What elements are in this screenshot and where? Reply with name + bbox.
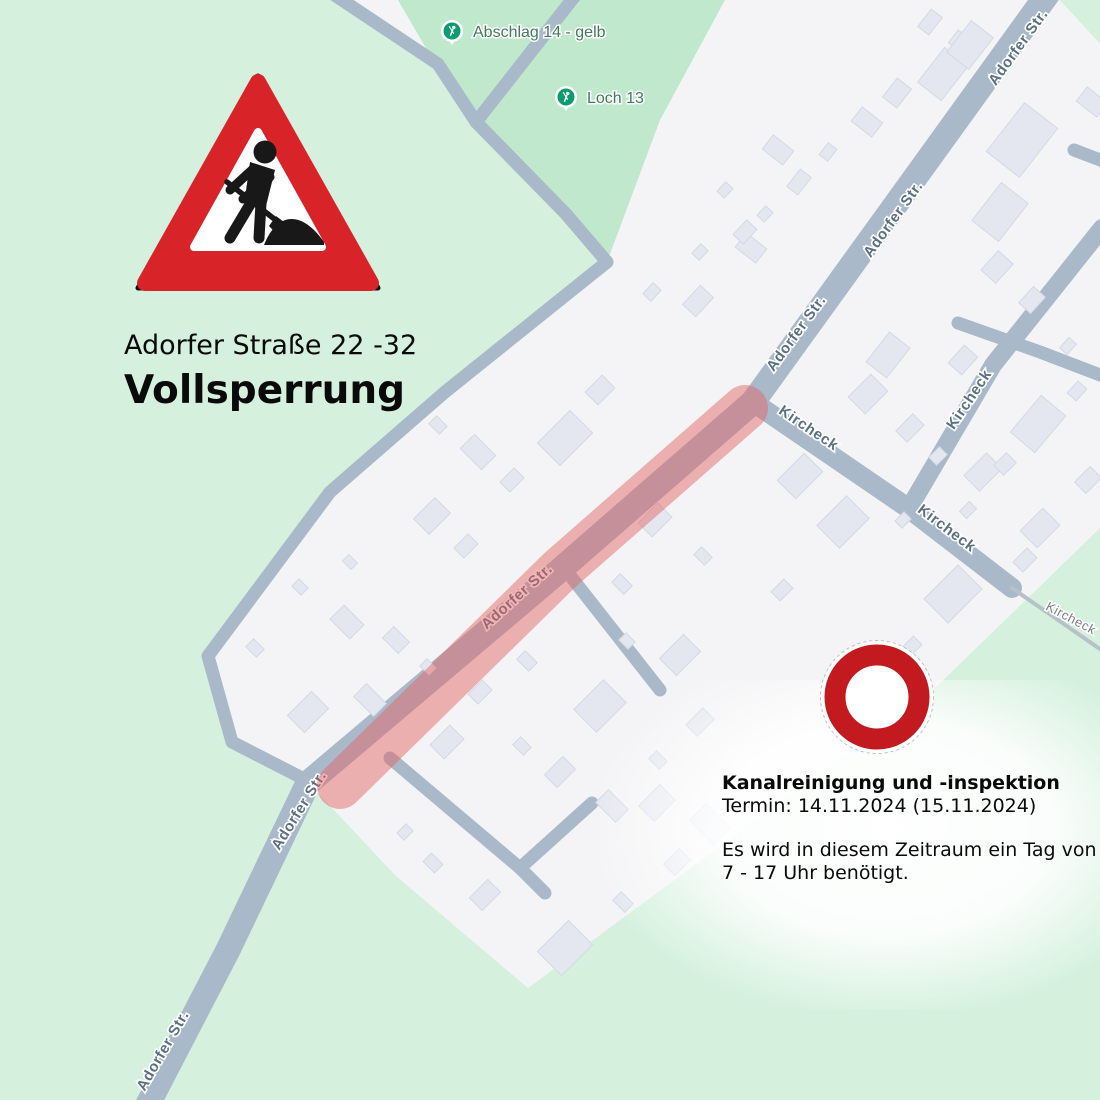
building [429,416,447,434]
building [574,680,626,732]
building [330,605,364,639]
building [689,803,730,844]
building [292,579,308,595]
green-area-topright [1056,0,1100,48]
building [964,453,1002,491]
building [1075,467,1100,494]
poi-label: Loch 13 [587,90,644,107]
building [819,143,837,162]
building [883,78,912,108]
building [902,636,922,656]
building [851,107,883,137]
road-south-branch [520,803,592,868]
poi-label: Abschlag 14 - gelb [473,24,606,41]
building [397,824,413,840]
building [1076,87,1100,117]
building [246,639,264,657]
building [948,345,977,375]
building [517,651,538,672]
golfer-head [452,26,455,29]
map-canvas[interactable]: Adorfer Str.Adorfer Str.Adorfer Str.Ador… [0,0,1100,1100]
building [287,691,328,732]
building [460,434,495,469]
building [896,414,924,442]
building [848,374,888,414]
building [613,892,634,913]
building [924,565,982,623]
building [972,183,1028,242]
building [918,9,943,35]
building [544,756,575,787]
building [383,627,410,654]
building [771,579,793,601]
building [537,410,592,465]
building [585,375,615,405]
building [757,206,773,222]
golfer-head [566,92,569,95]
building [717,182,733,198]
building [694,547,712,565]
building [1060,337,1077,354]
building [686,708,714,736]
building [469,879,500,910]
building [414,498,451,535]
building [1067,381,1087,401]
building [649,751,667,769]
road-stub-northeast [1074,150,1100,163]
building [643,283,661,301]
building [777,453,822,498]
building [454,534,478,558]
building [659,634,700,675]
building [596,790,629,823]
building [430,725,464,759]
building [1013,548,1037,572]
building [423,853,443,873]
base-map: Adorfer Str.Adorfer Str.Adorfer Str.Ador… [0,0,1100,1100]
building [981,251,1013,284]
building [960,502,977,519]
building [866,332,910,378]
building [986,103,1057,178]
building [817,496,869,548]
closure-highlight [340,408,745,786]
building [513,737,531,755]
building [1010,395,1065,452]
building [500,468,524,492]
building [787,169,812,195]
building [692,244,708,260]
building [1020,508,1060,548]
building [612,574,633,595]
building [683,285,714,316]
building [639,785,676,822]
road-stub-middle [572,578,660,690]
building [343,555,358,570]
building [762,135,794,165]
